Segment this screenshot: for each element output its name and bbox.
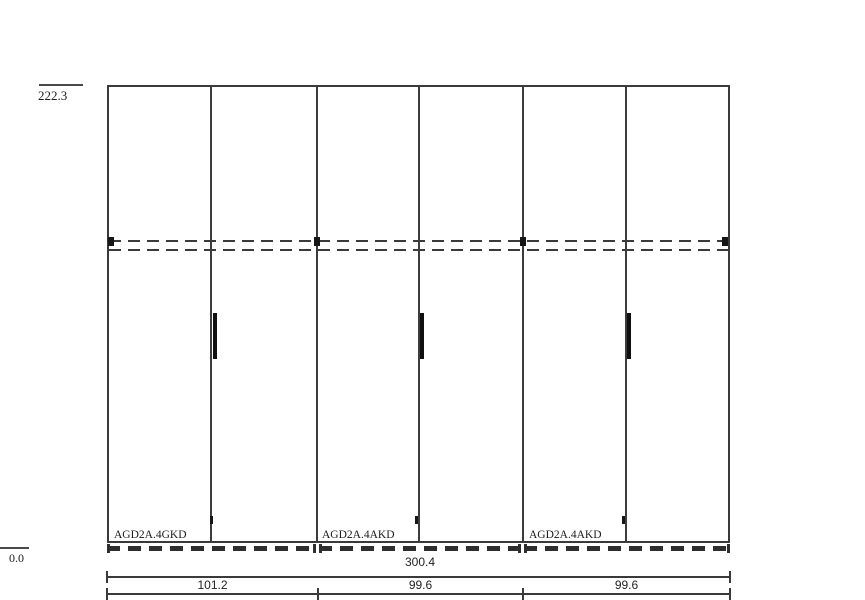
dimension-segments-tick-4 <box>729 588 731 600</box>
rail-bracket-left <box>108 237 114 246</box>
elevation-bottom-tick-line <box>0 547 29 549</box>
door-divider-1 <box>210 85 212 543</box>
module-label-2: AGD2A.4AKD <box>322 529 395 541</box>
dimension-segments-tick-1 <box>106 588 108 600</box>
door-handle-1 <box>213 313 217 359</box>
hanging-rail-dashed-line-upper <box>109 240 728 242</box>
plinth-dashed-segment-3 <box>524 546 730 551</box>
rail-bracket-joint-1 <box>314 237 320 246</box>
rail-bracket-joint-2 <box>520 237 526 246</box>
dimension-total-label: 300.4 <box>395 555 445 569</box>
rail-bracket-right <box>722 237 728 246</box>
elevation-top-label: 222.3 <box>38 88 67 104</box>
dimension-segment-label-2: 99.6 <box>318 578 523 592</box>
plinth-dashed-segment-2 <box>319 546 521 551</box>
dimension-line-segments <box>107 593 731 595</box>
door-divider-4-module-joint <box>522 85 524 543</box>
door-divider-2-module-joint <box>316 85 318 543</box>
dimension-segments-tick-3 <box>522 588 524 600</box>
module-label-3: AGD2A.4AKD <box>529 529 602 541</box>
door-handle-2 <box>420 313 424 359</box>
door-pivot-mark-1 <box>210 516 213 524</box>
dimension-segments-tick-2 <box>317 588 319 600</box>
dimension-segment-label-3: 99.6 <box>523 578 730 592</box>
elevation-bottom-label: 0.0 <box>9 551 24 566</box>
door-pivot-mark-2 <box>415 516 418 524</box>
door-handle-3 <box>627 313 631 359</box>
elevation-drawing-canvas: AGD2A.4GKD AGD2A.4AKD AGD2A.4AKD 222.3 0… <box>0 0 865 600</box>
hanging-rail-dashed-line-lower <box>109 249 728 251</box>
module-label-1: AGD2A.4GKD <box>114 529 187 541</box>
dimension-segment-label-1: 101.2 <box>107 578 318 592</box>
door-pivot-mark-3 <box>622 516 625 524</box>
plinth-dashed-segment-1 <box>107 546 316 551</box>
elevation-top-tick-line <box>39 84 83 86</box>
